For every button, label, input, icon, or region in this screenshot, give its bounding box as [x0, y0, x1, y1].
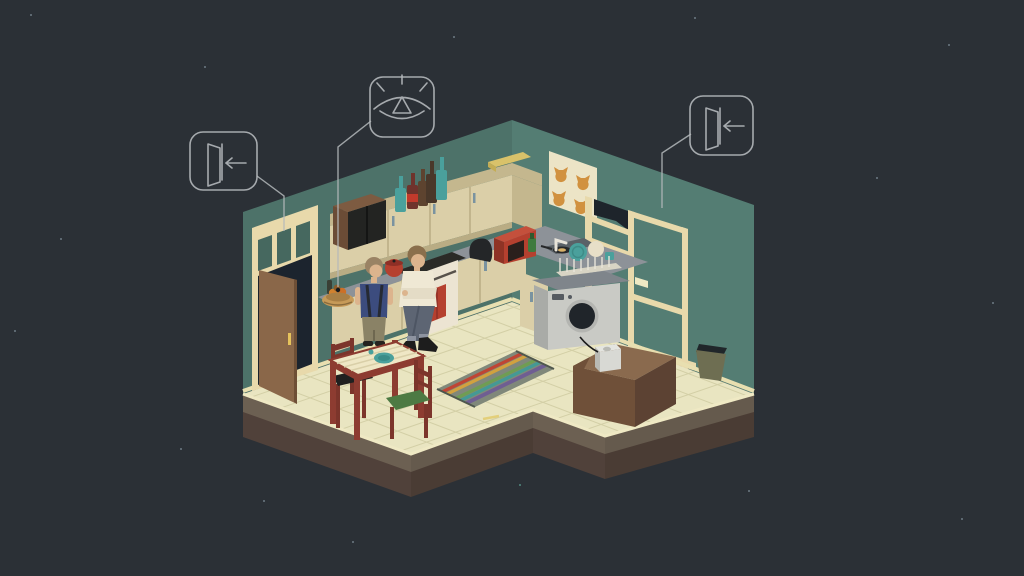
red-pot	[385, 259, 403, 277]
door-leaf	[259, 270, 297, 404]
star-dot	[519, 484, 521, 486]
star-dot	[30, 14, 32, 16]
star-dot	[748, 490, 750, 492]
washer-controls	[552, 294, 564, 300]
star-dot	[352, 541, 354, 543]
star-dot	[14, 330, 16, 332]
door-handle	[288, 333, 291, 345]
callout-dot	[336, 288, 340, 292]
white-radio-box	[595, 344, 621, 372]
cream-plate	[588, 241, 604, 257]
star-dot	[204, 66, 206, 68]
person-b-face	[411, 254, 425, 268]
washer-door	[569, 303, 595, 329]
game-viewport	[0, 0, 1024, 576]
person-a-face	[370, 265, 383, 278]
star-dot	[180, 448, 182, 450]
star-dot	[60, 238, 62, 240]
game-scene-canvas	[0, 0, 1024, 576]
star-dot	[453, 36, 455, 38]
star-dot	[992, 302, 994, 304]
star-dot	[961, 518, 963, 520]
star-dot	[263, 500, 265, 502]
drawer-handle	[484, 260, 487, 271]
star-dot	[876, 177, 878, 179]
star-dot	[694, 17, 696, 19]
cabinet-handle	[392, 216, 395, 226]
kettle	[469, 238, 492, 262]
star-dot	[948, 44, 950, 46]
cabinet-handle	[433, 204, 436, 214]
teal-plate	[569, 243, 587, 261]
cabinet-handle	[473, 193, 476, 203]
person-a-shirt	[360, 284, 388, 318]
